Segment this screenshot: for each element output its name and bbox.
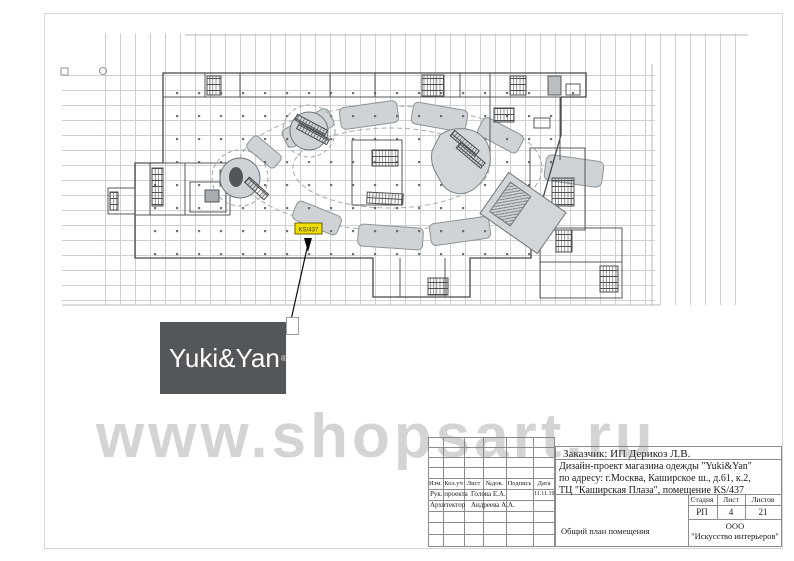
titleblock-line <box>428 457 555 458</box>
rev-col-data: Дата <box>538 478 551 489</box>
titleblock-line <box>688 494 689 547</box>
brand-logo: Yuki&Yan® <box>160 322 286 394</box>
sheet-number: 4 <box>729 505 734 519</box>
rev-col-podpis: Подпись <box>508 478 532 489</box>
project-desc-line3: ТЦ "Каширская Плаза", помещение KS/437 <box>559 485 744 497</box>
rev-col-koluch: Кол.уч <box>444 478 463 489</box>
titleblock-line <box>717 494 718 519</box>
rev-col-izm: Изм. <box>429 478 442 489</box>
titleblock-line <box>688 519 782 520</box>
unit-highlight: KS/437 <box>295 223 322 234</box>
titleblock-line <box>428 447 555 448</box>
name-architect: Андреева А.А. <box>471 500 515 511</box>
sheet-header: Лист <box>723 494 739 505</box>
role-project-lead: Рук. проекта <box>430 489 468 500</box>
titleblock-line <box>428 511 555 512</box>
titleblock-line <box>428 534 555 535</box>
titleblock-line <box>745 494 746 519</box>
drawing-sheet: KS/437 Yuki&Yan® www.shopsart.ru Изм. Ко… <box>0 0 794 561</box>
stage-header: Стадия <box>691 494 714 505</box>
rev-col-ndok: №док. <box>486 478 504 489</box>
titleblock-line <box>506 437 507 547</box>
project-desc-line1: Дизайн-проект магазина одежды "Yuki&Yan" <box>559 461 752 473</box>
titleblock-line <box>428 467 555 468</box>
unit-label: KS/437 <box>299 228 319 234</box>
drawing-title: Общий план помещения <box>561 526 650 536</box>
title-block: Изм. Кол.уч Лист №док. Подпись Дата Рук.… <box>428 437 782 547</box>
titleblock-line <box>428 522 555 523</box>
rev-col-list: Лист <box>467 478 481 489</box>
company-name-line1: ООО <box>726 521 744 531</box>
date-project-lead: 11.11.19 <box>534 489 555 500</box>
stage-value: РП <box>696 505 708 519</box>
role-architect: Архитектор <box>430 500 465 511</box>
registered-mark: ® <box>281 354 287 363</box>
name-project-lead: Голова Е.А. <box>471 489 506 500</box>
leader-end-tag <box>286 317 299 335</box>
brand-logo-text: Yuki&Yan <box>160 343 280 374</box>
sheets-header: Листов <box>752 494 775 505</box>
company-name-line2: "Искусство интерьеров" <box>691 531 779 541</box>
sheets-total: 21 <box>759 505 768 519</box>
customer-line: Заказчик: ИП Дерикоз Л.В. <box>563 448 690 461</box>
project-desc-line2: по адресу: г.Москва, Каширское ш., д.61,… <box>559 473 751 485</box>
